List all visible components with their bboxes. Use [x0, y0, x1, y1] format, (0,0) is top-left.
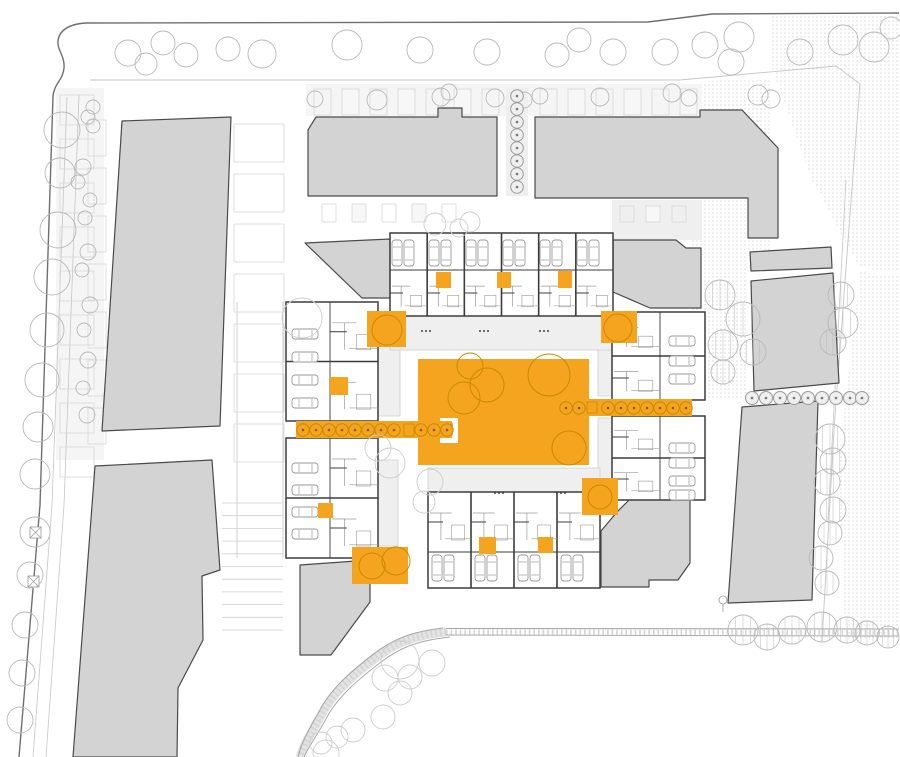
site-plan-figure [0, 0, 900, 757]
site-plan-drawing [0, 0, 900, 757]
